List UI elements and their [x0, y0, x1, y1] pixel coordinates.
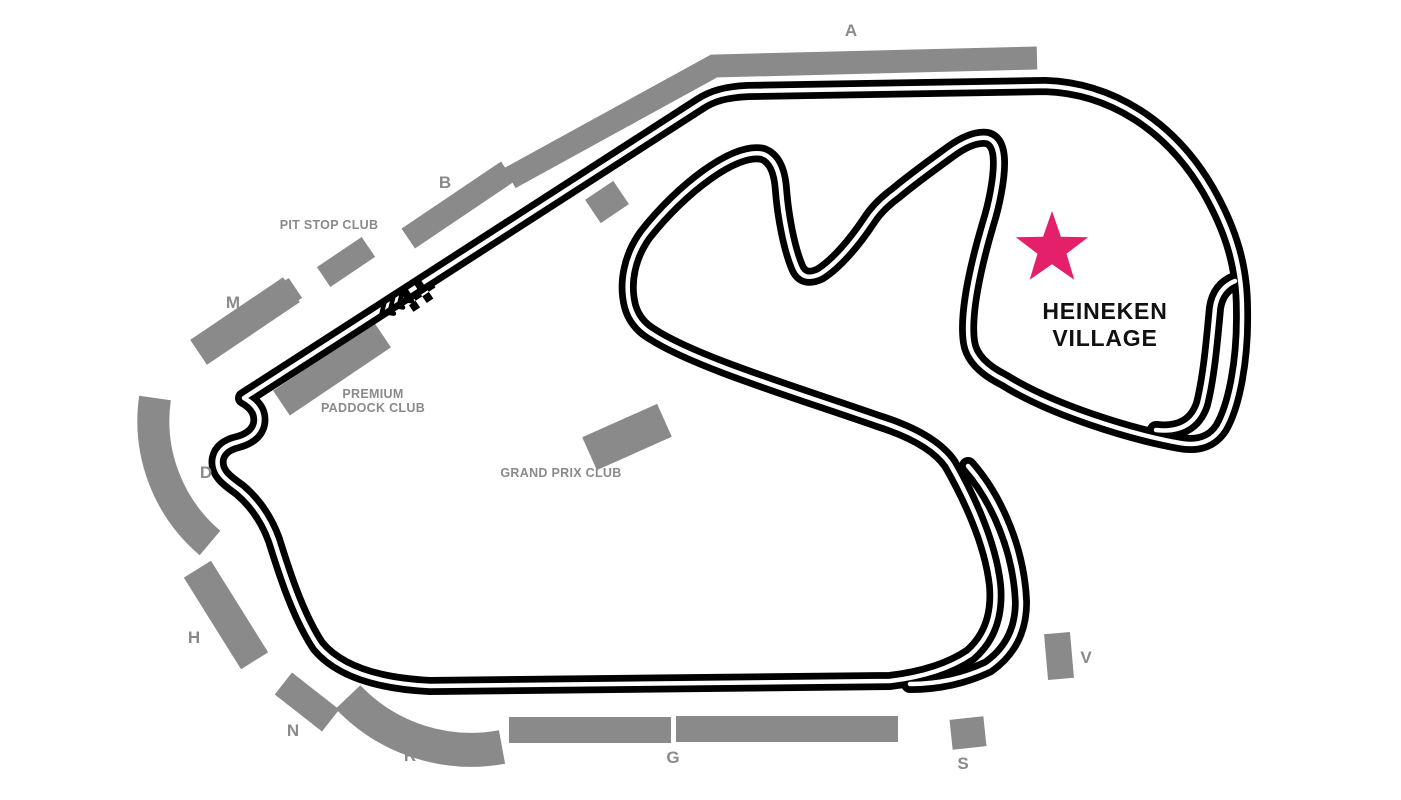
stand-g-block-1[interactable]: [509, 717, 671, 743]
stand-h-label: H: [188, 628, 200, 647]
circuit-map: A B M D H N R G S V PIT STOP CLUB PREMIU…: [0, 0, 1401, 800]
track-outline: [218, 86, 1243, 686]
stand-s-label: S: [957, 754, 968, 773]
stand-r-label: R: [404, 746, 416, 765]
stand-r[interactable]: [348, 697, 502, 750]
grand-prix-club-label: GRAND PRIX CLUB: [500, 466, 621, 480]
stand-m-label: M: [226, 293, 240, 312]
stand-d-label: D: [200, 463, 212, 482]
stand-g-label: G: [666, 748, 679, 767]
stand-m[interactable]: [190, 277, 300, 365]
premium-paddock-club-label-line2: PADDOCK CLUB: [321, 401, 425, 415]
stand-v-label: V: [1080, 648, 1092, 667]
premium-paddock-club-label-line1: PREMIUM: [342, 387, 403, 401]
stand-a-label: A: [845, 21, 857, 40]
grand-prix-club-block[interactable]: [582, 404, 672, 470]
track: [218, 86, 1243, 686]
stand-b-label: B: [439, 173, 451, 192]
heineken-village-label-line1: HEINEKEN: [1042, 298, 1167, 324]
heineken-village-label-line2: VILLAGE: [1052, 325, 1157, 351]
stand-h[interactable]: [184, 561, 268, 670]
stand-block-trackside[interactable]: [585, 181, 629, 223]
stand-n-label: N: [287, 721, 299, 740]
stand-s[interactable]: [950, 716, 987, 749]
pit-stop-club-label: PIT STOP CLUB: [280, 218, 379, 232]
pit-stop-club-block-1[interactable]: [317, 237, 375, 287]
stand-g-block-2[interactable]: [676, 716, 898, 742]
stand-v[interactable]: [1044, 632, 1074, 680]
star-icon[interactable]: [1016, 211, 1088, 280]
stand-n[interactable]: [275, 672, 340, 731]
track-centerline: [218, 86, 1243, 686]
circuit-svg: A B M D H N R G S V PIT STOP CLUB PREMIU…: [0, 0, 1401, 800]
